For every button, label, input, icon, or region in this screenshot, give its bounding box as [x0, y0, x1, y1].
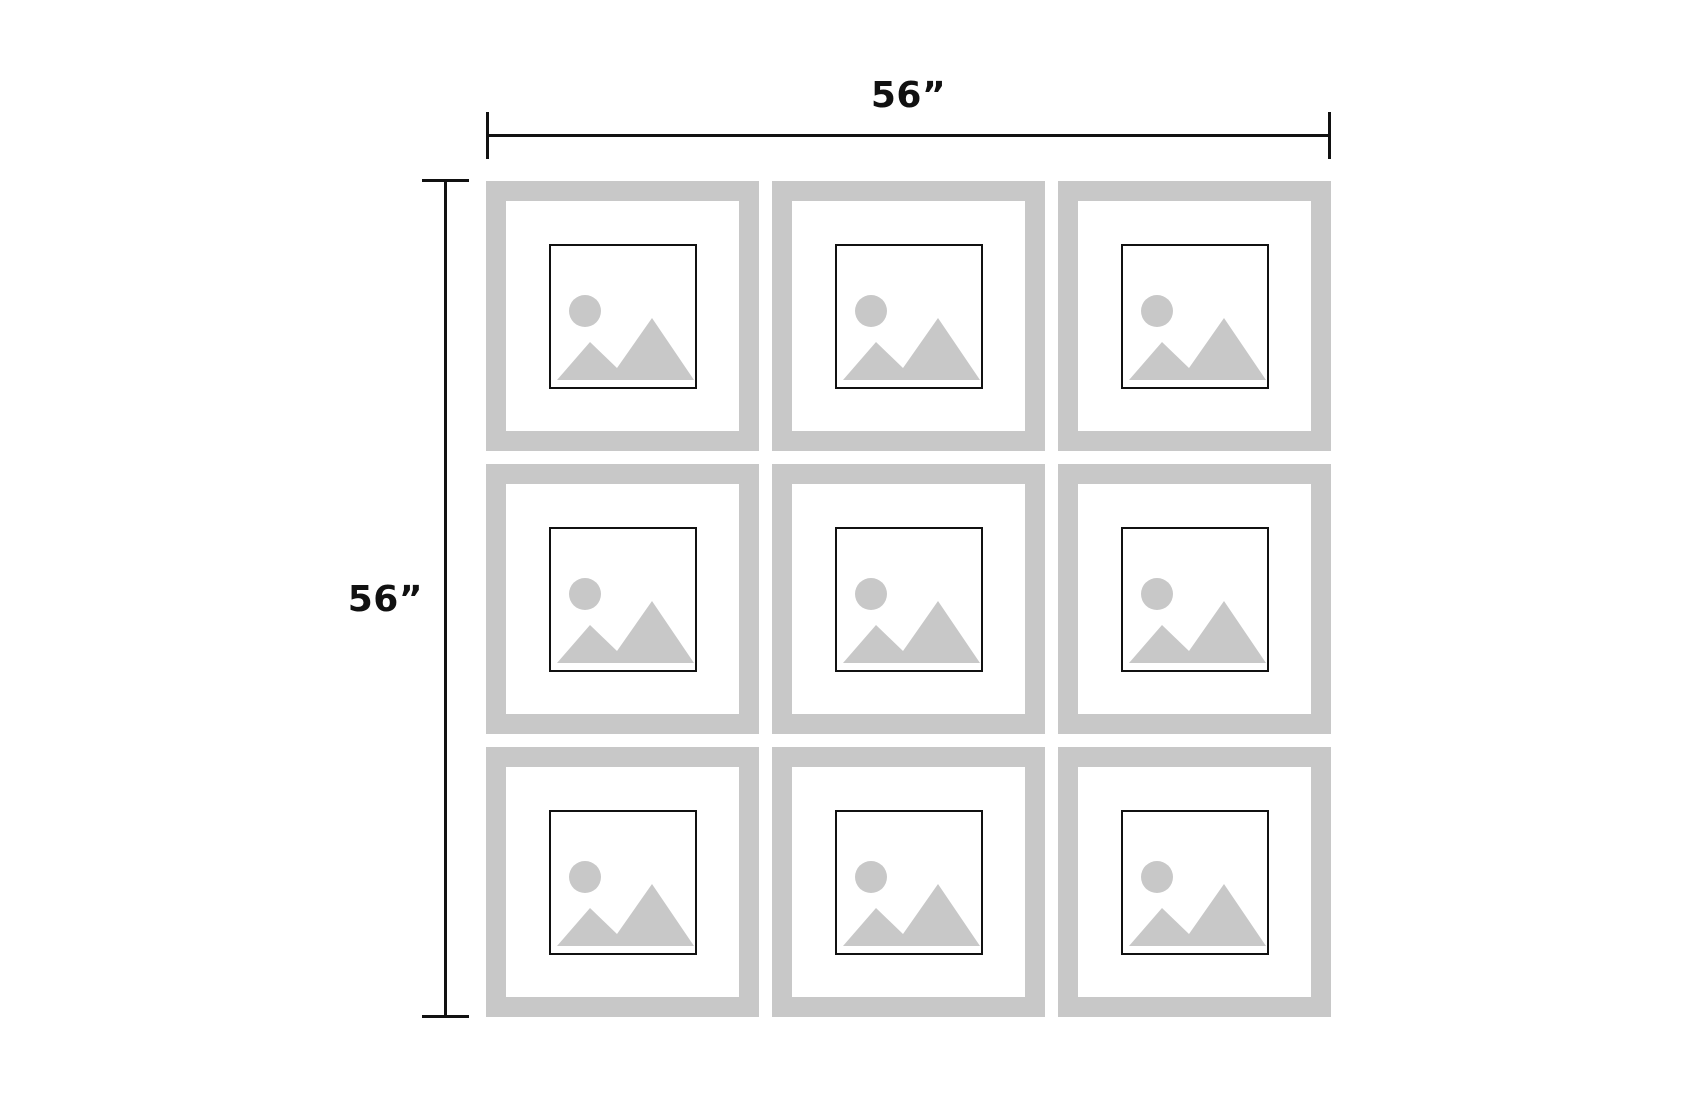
- frame-mat: [1078, 484, 1311, 714]
- frame-mat: [792, 484, 1025, 714]
- frame-grid: [486, 181, 1331, 1017]
- image-placeholder-icon: [551, 812, 695, 953]
- sun-circle: [855, 295, 887, 327]
- gallery-wall-diagram: 56” 56”: [0, 0, 1700, 1100]
- image-placeholder-icon: [1123, 812, 1267, 953]
- height-dimension-line: [444, 179, 447, 1018]
- sun-circle: [569, 578, 601, 610]
- photo-placeholder: [1121, 810, 1269, 955]
- mountains: [843, 318, 980, 380]
- sun-circle: [1141, 578, 1173, 610]
- picture-frame: [772, 464, 1045, 734]
- photo-placeholder: [549, 810, 697, 955]
- height-dimension-label: 56”: [270, 582, 423, 618]
- dimension-tick: [422, 1015, 469, 1018]
- picture-frame: [772, 181, 1045, 451]
- image-placeholder-icon: [1123, 246, 1267, 387]
- image-placeholder-icon: [551, 246, 695, 387]
- sun-circle: [1141, 861, 1173, 893]
- frame-mat: [506, 484, 739, 714]
- dimension-tick: [1328, 112, 1331, 159]
- mountains: [843, 884, 980, 946]
- width-dimension-line: [486, 134, 1331, 137]
- picture-frame: [1058, 464, 1331, 734]
- photo-placeholder: [1121, 244, 1269, 389]
- picture-frame: [772, 747, 1045, 1017]
- sun-circle: [569, 295, 601, 327]
- mountains: [1129, 601, 1266, 663]
- width-dimension-label: 56”: [486, 78, 1331, 114]
- image-placeholder-icon: [837, 812, 981, 953]
- picture-frame: [486, 181, 759, 451]
- image-placeholder-icon: [551, 529, 695, 670]
- sun-circle: [855, 578, 887, 610]
- photo-placeholder: [835, 527, 983, 672]
- mountains: [1129, 884, 1266, 946]
- image-placeholder-icon: [837, 246, 981, 387]
- frame-mat: [506, 767, 739, 997]
- mountains: [557, 318, 694, 380]
- image-placeholder-icon: [837, 529, 981, 670]
- mountains: [1129, 318, 1266, 380]
- photo-placeholder: [549, 527, 697, 672]
- frame-mat: [792, 201, 1025, 431]
- frame-mat: [1078, 201, 1311, 431]
- frame-mat: [792, 767, 1025, 997]
- sun-circle: [855, 861, 887, 893]
- picture-frame: [486, 464, 759, 734]
- sun-circle: [569, 861, 601, 893]
- dimension-tick: [422, 179, 469, 182]
- picture-frame: [486, 747, 759, 1017]
- frame-mat: [1078, 767, 1311, 997]
- mountains: [557, 884, 694, 946]
- photo-placeholder: [1121, 527, 1269, 672]
- dimension-tick: [486, 112, 489, 159]
- mountains: [557, 601, 694, 663]
- sun-circle: [1141, 295, 1173, 327]
- picture-frame: [1058, 181, 1331, 451]
- frame-mat: [506, 201, 739, 431]
- picture-frame: [1058, 747, 1331, 1017]
- mountains: [843, 601, 980, 663]
- photo-placeholder: [835, 244, 983, 389]
- photo-placeholder: [549, 244, 697, 389]
- image-placeholder-icon: [1123, 529, 1267, 670]
- photo-placeholder: [835, 810, 983, 955]
